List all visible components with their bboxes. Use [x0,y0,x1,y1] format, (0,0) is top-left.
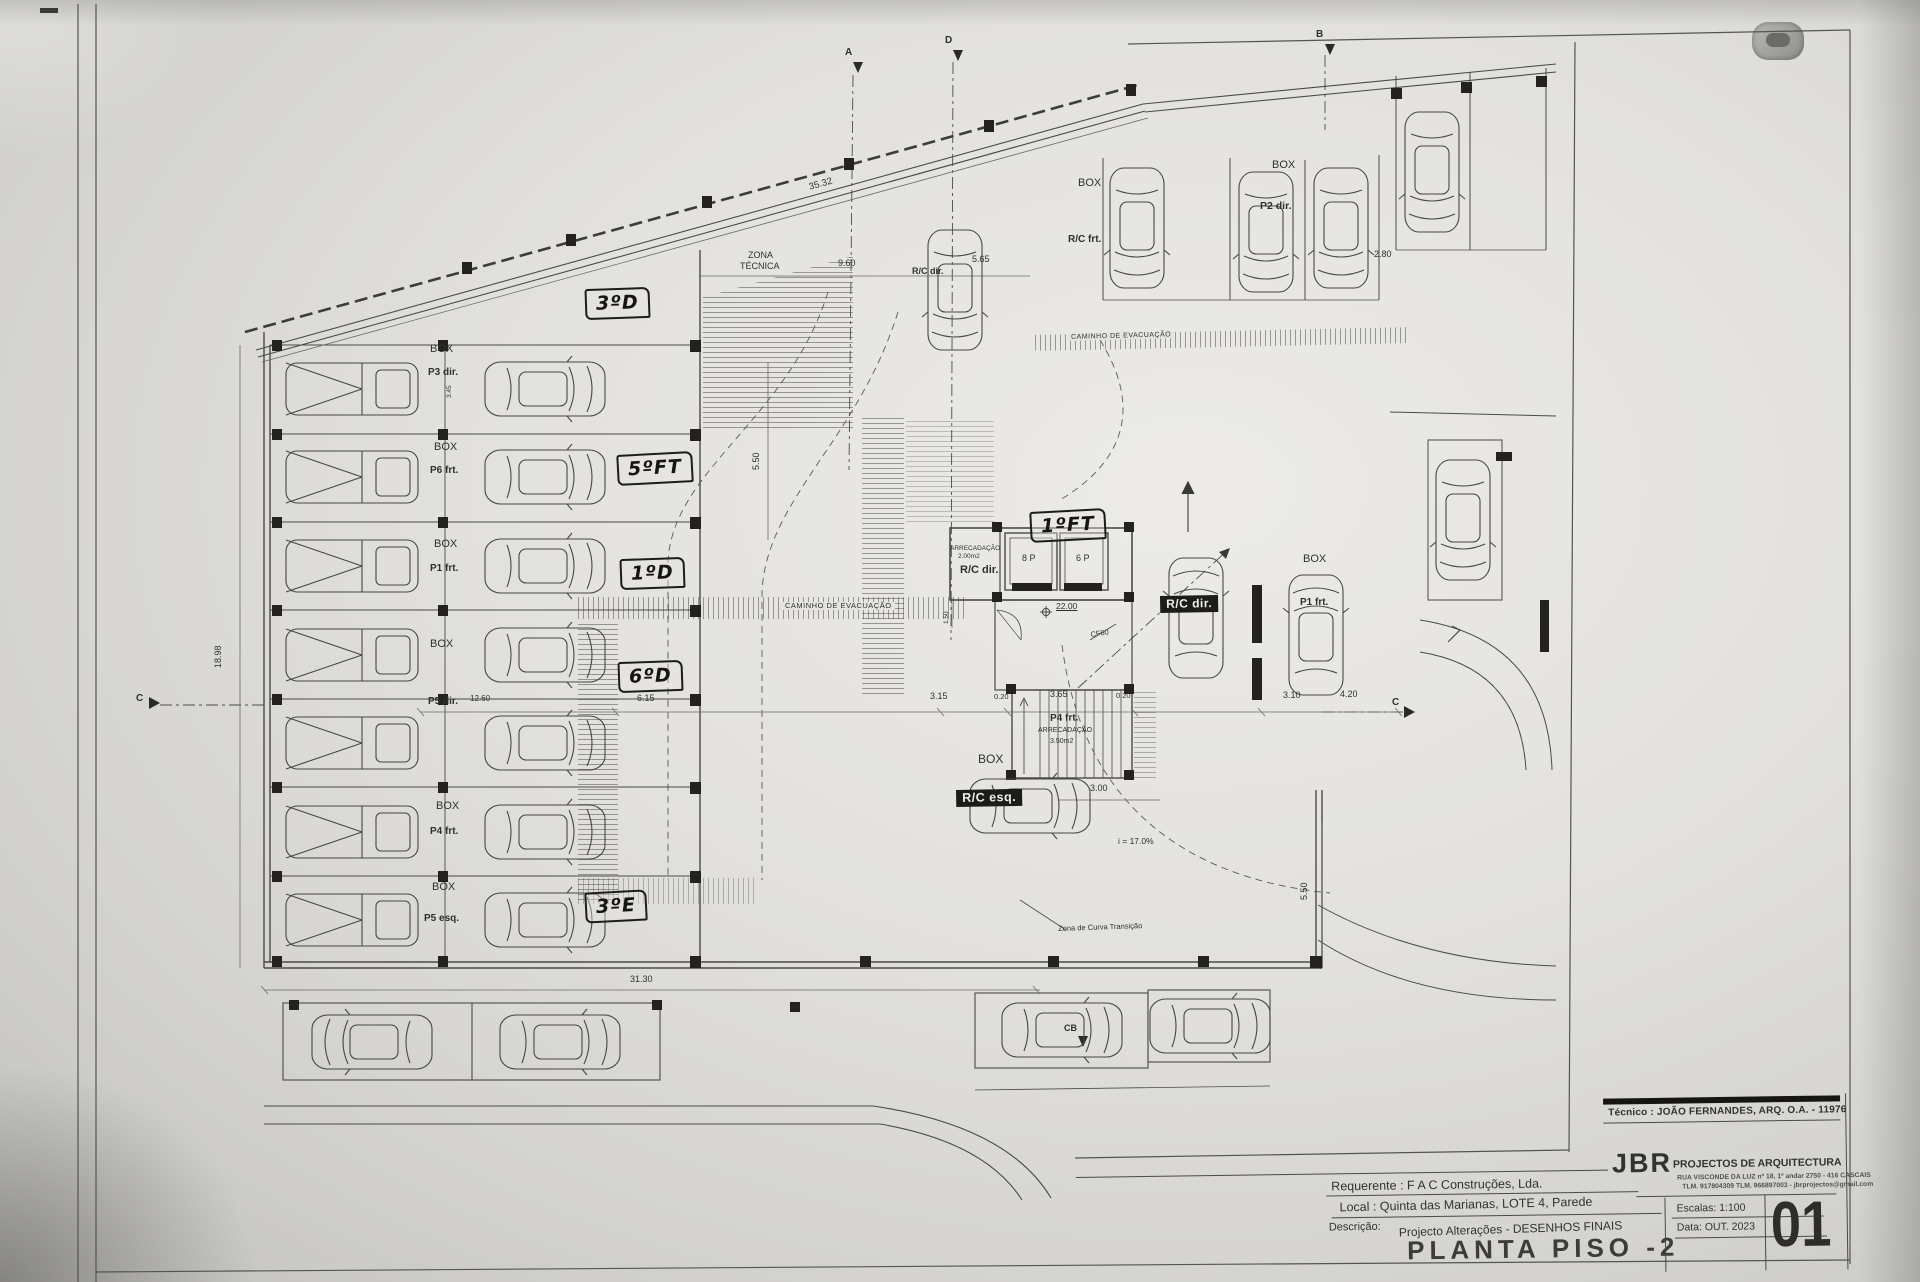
box-label: BOX [432,882,455,894]
drawing-title: PLANTA PISO -2 [1407,1234,1680,1264]
dim-5-50-right: 5.50 [1300,882,1309,900]
section-marker-a: A [845,48,852,59]
unit-label-rc-frt: R/C frt. [1068,235,1101,246]
box-label: BOX [436,801,459,813]
box-label: BOX [434,539,457,551]
firm-initials: JBR [1612,1150,1672,1178]
zona-tecnica-label-line2: TÉCNICA [740,262,780,271]
evacuation-path-label-mid: CAMINHO DE EVACUAÇÃO [782,602,895,610]
dim-5-50-top: 5.50 [752,452,761,470]
elevator-6p-label: 6 P [1076,554,1090,563]
box-label: BOX [1078,178,1101,190]
firm-name: PROJECTOS DE ARQUITECTURA [1673,1157,1842,1170]
handwritten-tag-3d: 3ºD [584,287,650,320]
section-marker-b: B [1316,30,1323,41]
unit-label-p6frt: P6 frt. [430,466,458,477]
box-label: BOX [1272,160,1295,172]
unit-label-rc-dir-top: R/C dir. [912,267,944,276]
scale-value: Escalas: 1:100 [1677,1203,1746,1214]
unit-label-p4frt: P4 frt. [430,827,458,838]
dim-6-15: 6.15 [637,694,655,703]
section-marker-c-left: C [136,694,143,705]
unit-label-p5dir: P5 dir. [428,697,458,708]
unit-label-p3dir: P3 dir. [428,368,458,379]
client-line: Requerente : F A C Construções, Lda. [1331,1177,1542,1192]
site-line: Local : Quinta das Marianas, LOTE 4, Par… [1339,1196,1592,1214]
dim-0-20-b: 0.20 [1116,692,1131,700]
dim-2-80: 2.80 [1374,250,1392,259]
dim-12-60: 12.60 [470,695,490,703]
photographed-drawing-sheet: 3ºD 5ºFT 1ºD 6ºD 3ºE 1ºFT BOX BOX BOX BO… [0,0,1920,1282]
dim-3-65: 3.65 [1050,690,1068,699]
storage-small-area: 2.00m2 [958,554,980,561]
dim-3-10: 3.10 [1283,691,1301,700]
dim-0-20-a: 0.20 [994,693,1009,701]
description-label: Descrição: [1329,1222,1381,1234]
unit-label-p2dir: P2 dir. [1260,201,1292,212]
level-value: 22.00 [1056,602,1077,611]
box-label: BOX [1303,554,1326,566]
unit-label-rc-dir-core: R/C dir. [960,565,999,577]
parked-cars [286,112,1496,1075]
handwritten-tag-1ft: 1ºFT [1029,508,1106,543]
storage-stair-label: ARRECADAÇÃO [1038,727,1092,734]
dim-3-00: 3.00 [1090,784,1108,793]
handwritten-tag-1d: 1ºD [619,557,685,590]
storage-small-label: ARRECADAÇÃO [950,546,1000,553]
dim-3-45: 3.45 [447,385,454,398]
handwritten-tag-5ft: 5ºFT [616,451,693,486]
unit-label-p1frt: P1 frt. [430,564,458,575]
technician-line: Técnico : JOÃO FERNANDES, ARQ. O.A. - 11… [1608,1105,1846,1118]
box-label: BOX [434,442,457,454]
floor-plan-linework [0,0,1920,1282]
dim-9-60: 9.60 [838,259,856,268]
unit-label-p5esq: P5 esq. [424,914,459,925]
dim-1-50: 1.50 [944,611,951,624]
box-label: BOX [978,753,1003,766]
dim-3-15: 3.15 [930,692,948,701]
section-marker-cb: CB [1064,1024,1077,1033]
dim-18-98: 18.98 [214,645,223,668]
handwritten-tag-6d: 6ºD [617,660,683,693]
zona-tecnica-label-line1: ZONA [748,251,773,260]
unit-label-rc-esq-reversed: R/C esq. [956,789,1022,807]
dim-5-65: 5.65 [972,255,990,264]
unit-label-p1frt-right: P1 frt. [1300,598,1328,609]
title-block-top-bar [1603,1095,1840,1104]
section-marker-d: D [945,36,952,47]
sheet-number: 01 [1770,1191,1831,1256]
date-value: Data: OUT. 2023 [1677,1222,1755,1234]
elevator-8p-label: 8 P [1022,554,1036,563]
box-label: BOX [430,639,453,651]
section-marker-c-right: C [1392,698,1399,709]
storage-stair-area: 3.50m2 [1050,738,1073,745]
handwritten-tag-3e: 3ºE [584,889,647,923]
dim-31-30: 31.30 [630,975,653,984]
dim-4-20: 4.20 [1340,690,1358,699]
unit-label-p4frt-stair: P4 frt. [1050,714,1079,725]
ramp-slope-label: i = 17.0% [1118,837,1154,846]
title-block: Técnico : JOÃO FERNANDES, ARQ. O.A. - 11… [1075,1089,1867,1282]
box-label: BOX [430,344,453,356]
unit-label-rc-dir-reversed: R/C dir. [1160,595,1218,613]
